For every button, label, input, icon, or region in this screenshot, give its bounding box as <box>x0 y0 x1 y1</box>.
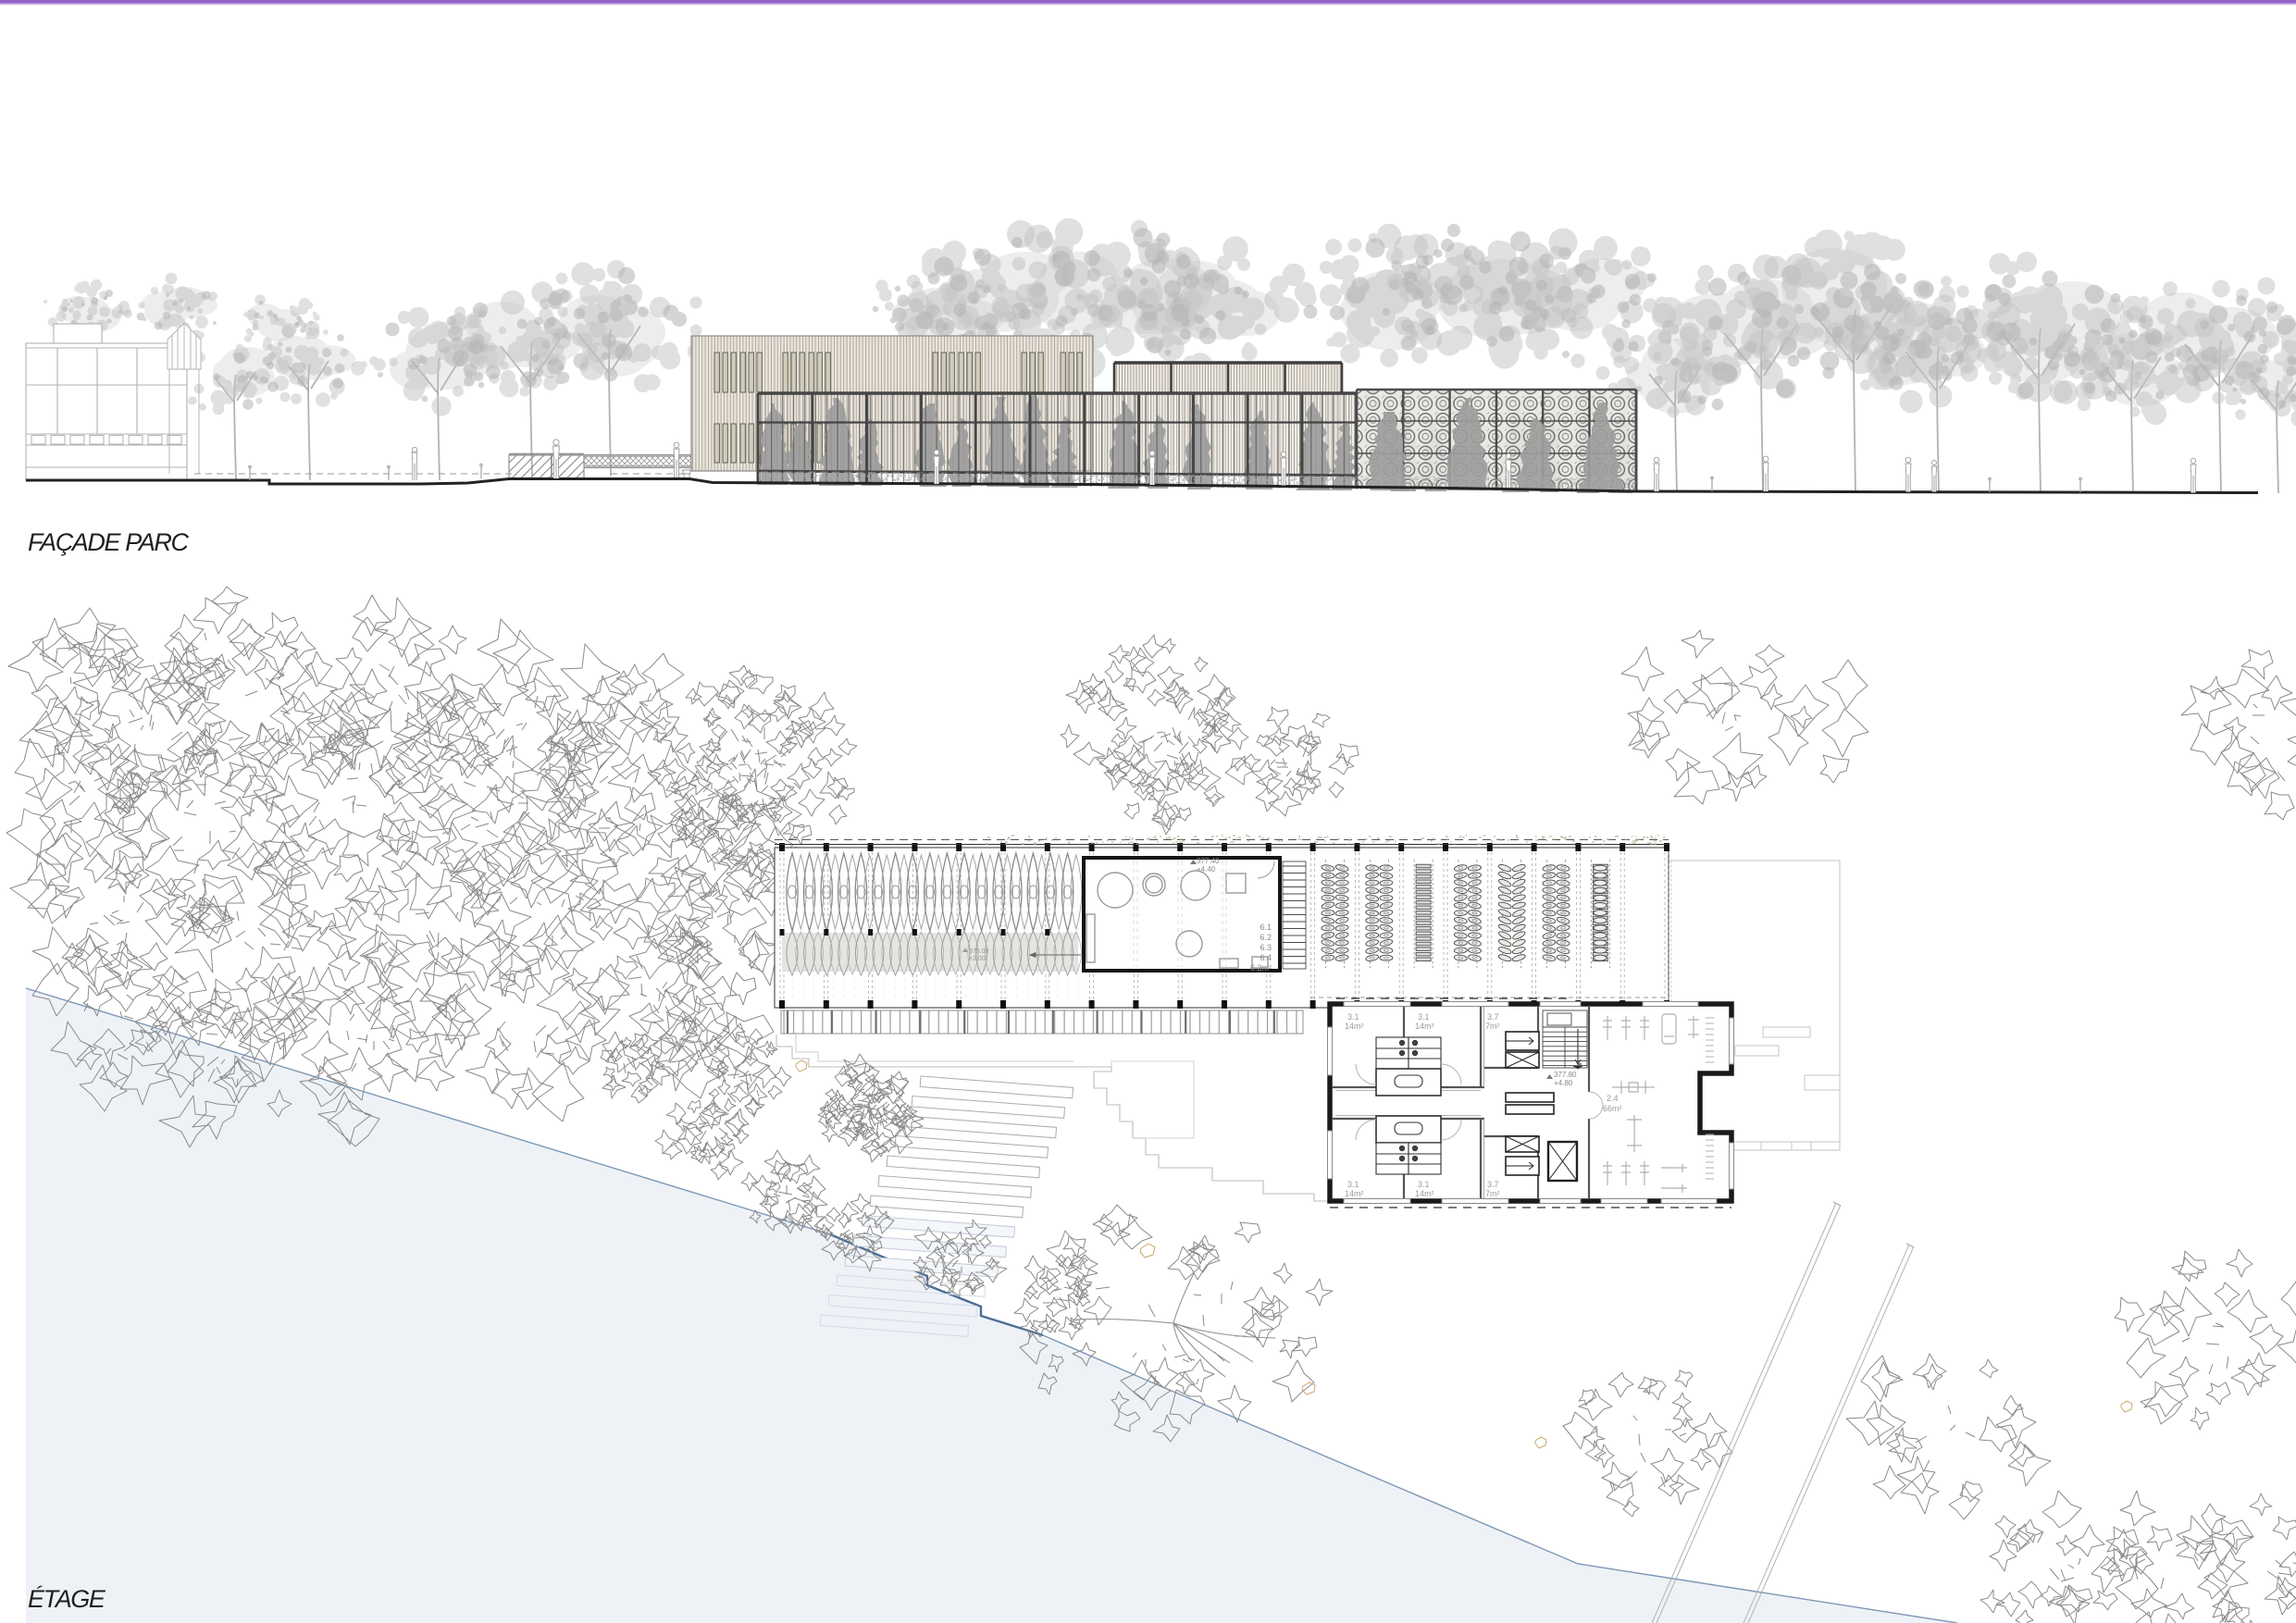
svg-text:+4.40: +4.40 <box>1197 865 1216 873</box>
svg-text:377.80: 377.80 <box>1554 1071 1577 1079</box>
svg-text:6.3: 6.3 <box>1260 943 1272 952</box>
svg-text:14m²: 14m² <box>1415 1189 1434 1198</box>
svg-text:6.2m²: 6.2m² <box>1250 963 1272 973</box>
svg-text:3.7: 3.7 <box>1487 1012 1499 1022</box>
svg-text:3.1: 3.1 <box>1347 1180 1359 1189</box>
svg-text:6.2: 6.2 <box>1260 933 1272 942</box>
svg-text:377.40: 377.40 <box>1197 857 1220 865</box>
svg-text:375.00: 375.00 <box>969 948 989 955</box>
svg-text:+4.80: +4.80 <box>1554 1079 1573 1087</box>
svg-text:FAÇADE PARC: FAÇADE PARC <box>28 528 190 556</box>
svg-text:3.7: 3.7 <box>1487 1180 1499 1189</box>
svg-text:14m²: 14m² <box>1345 1189 1364 1198</box>
svg-text:3.1: 3.1 <box>1418 1012 1430 1022</box>
svg-text:+2.00: +2.00 <box>969 956 986 962</box>
svg-text:6.4: 6.4 <box>1260 953 1272 962</box>
svg-text:3.1: 3.1 <box>1418 1180 1430 1189</box>
svg-text:7m²: 7m² <box>1485 1022 1500 1031</box>
svg-text:6.1: 6.1 <box>1260 923 1272 932</box>
svg-text:14m²: 14m² <box>1345 1022 1364 1031</box>
svg-text:2.4: 2.4 <box>1607 1094 1619 1103</box>
svg-text:ÉTAGE: ÉTAGE <box>28 1585 106 1613</box>
svg-text:14m²: 14m² <box>1415 1022 1434 1031</box>
svg-text:66m²: 66m² <box>1603 1104 1622 1113</box>
svg-text:3.1: 3.1 <box>1347 1012 1359 1022</box>
svg-text:7m²: 7m² <box>1485 1189 1500 1198</box>
